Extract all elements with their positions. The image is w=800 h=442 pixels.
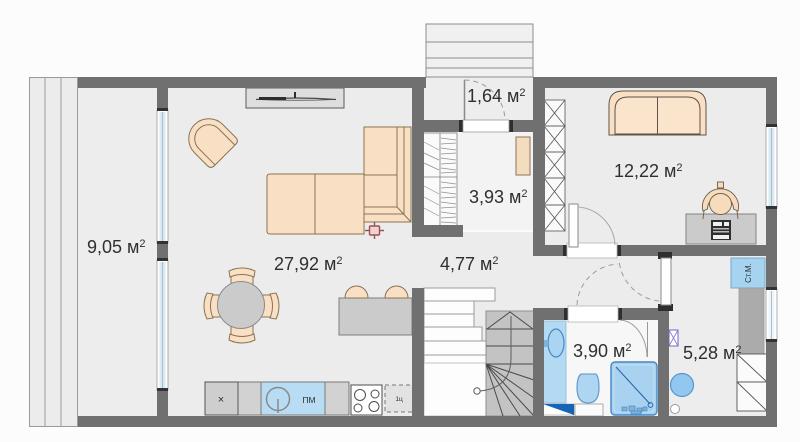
- svg-text:12,22 м2: 12,22 м2: [614, 161, 683, 181]
- svg-text:4,77 м2: 4,77 м2: [440, 254, 499, 274]
- svg-text:×: ×: [218, 394, 224, 406]
- svg-text:3,93 м2: 3,93 м2: [469, 187, 528, 207]
- svg-text:ПМ: ПМ: [302, 395, 315, 405]
- svg-text:1,64 м2: 1,64 м2: [467, 86, 526, 106]
- svg-text:Ст.М.: Ст.М.: [744, 263, 753, 283]
- svg-text:1ц: 1ц: [395, 396, 403, 403]
- svg-text:3,90 м2: 3,90 м2: [573, 341, 632, 361]
- svg-text:27,92 м2: 27,92 м2: [274, 254, 343, 274]
- svg-text:9,05 м2: 9,05 м2: [87, 237, 146, 257]
- svg-text:5,28 м2: 5,28 м2: [683, 343, 742, 363]
